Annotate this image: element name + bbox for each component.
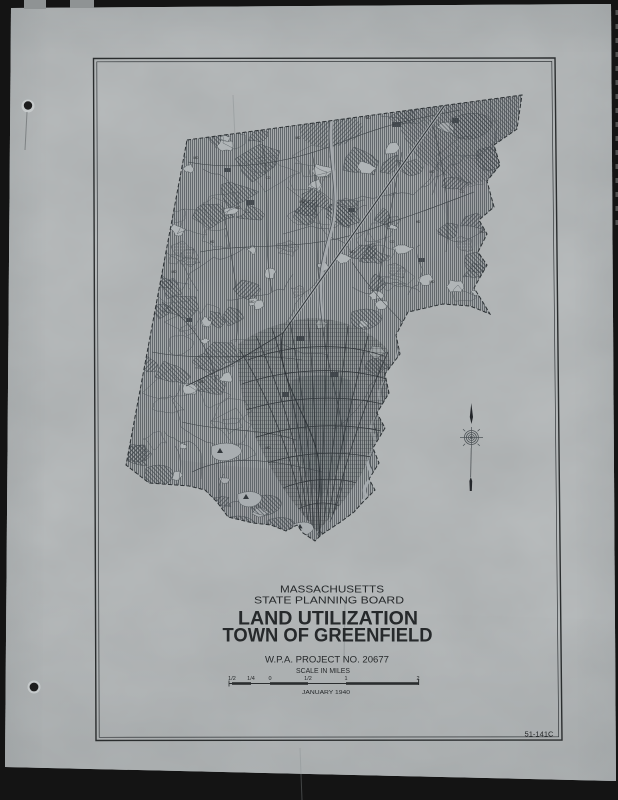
svg-text:MD: MD (200, 380, 206, 384)
svg-text:51-141C: 51-141C (525, 729, 554, 738)
svg-text:STATE PLANNING BOARD: STATE PLANNING BOARD (254, 596, 404, 607)
svg-text:JANUARY 1940: JANUARY 1940 (302, 690, 350, 696)
svg-text:HD: HD (210, 240, 215, 244)
svg-text:TOWN OF GREENFIELD: TOWN OF GREENFIELD (223, 625, 433, 647)
svg-text:MD: MD (172, 270, 178, 274)
svg-text:WD: WD (365, 116, 371, 120)
svg-text:CO: CO (390, 240, 395, 244)
svg-text:1/4: 1/4 (247, 676, 255, 682)
svg-text:1/2: 1/2 (304, 676, 312, 682)
svg-text:MD: MD (250, 300, 256, 304)
svg-text:MD: MD (236, 206, 242, 210)
svg-text:SCALE IN MILES: SCALE IN MILES (296, 666, 350, 675)
svg-text:0: 0 (268, 676, 271, 682)
svg-text:1: 1 (344, 676, 347, 682)
svg-text:MD: MD (430, 280, 436, 284)
svg-text:MD: MD (194, 156, 200, 160)
svg-text:MASSACHUSETTS: MASSACHUSETTS (280, 585, 384, 596)
svg-text:WD: WD (349, 250, 355, 254)
svg-text:HD: HD (416, 220, 421, 224)
svg-text:MD: MD (296, 136, 302, 140)
svg-text:W.P.A. PROJECT NO. 20677: W.P.A. PROJECT NO. 20677 (265, 654, 389, 665)
